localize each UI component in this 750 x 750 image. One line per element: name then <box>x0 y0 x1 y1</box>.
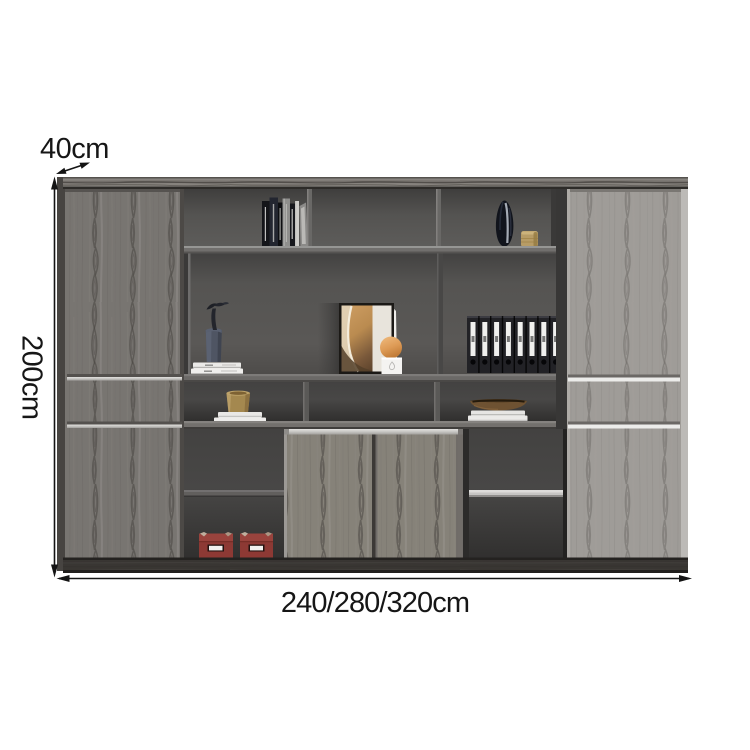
svg-text:240/280/320cm: 240/280/320cm <box>281 587 469 619</box>
svg-text:200cm: 200cm <box>16 335 48 420</box>
svg-text:40cm: 40cm <box>40 133 109 165</box>
